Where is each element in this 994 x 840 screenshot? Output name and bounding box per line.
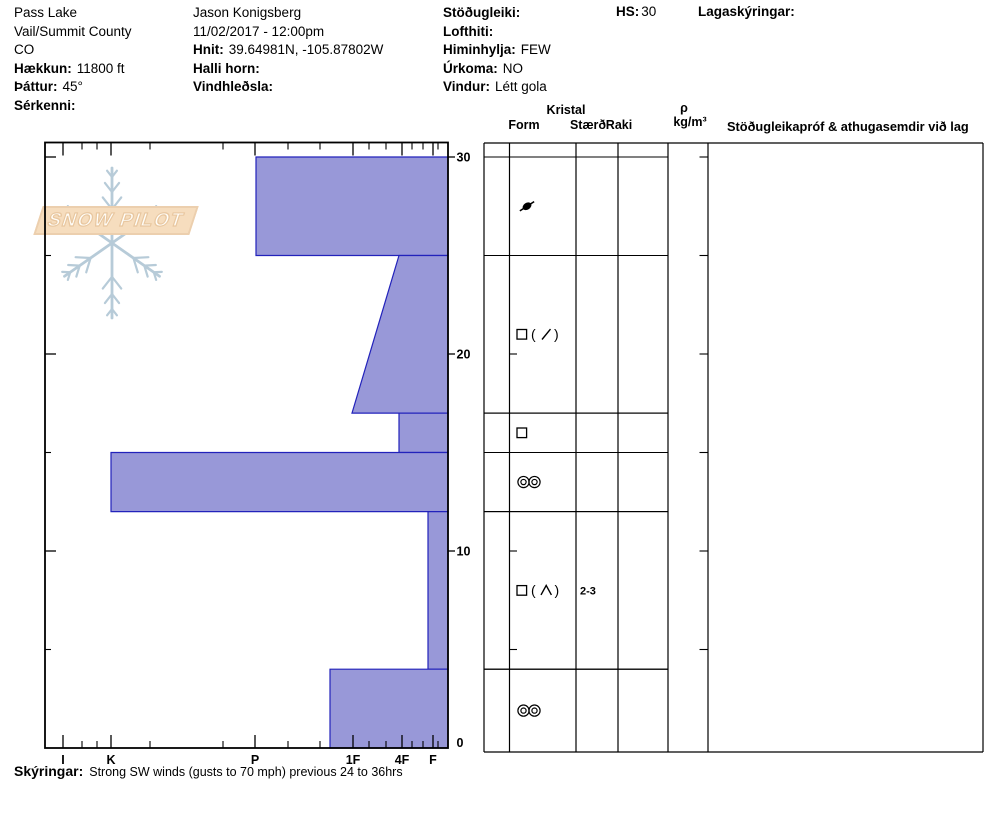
melt-crust-symbol [518,476,529,487]
depth-axis-label: 20 [457,348,471,362]
snow-layer-bar [330,669,448,748]
stability-tests-header: Stöðugleikapróf & athugasemdir við lag [727,119,969,134]
snow-layer-bar [428,512,448,670]
form-column-header: Form [508,118,539,132]
rounding-slash-symbol [542,329,551,339]
paren-glyph: ) [555,582,560,598]
comments-label: Skýringar: [14,763,83,779]
paren-glyph: ) [554,326,559,342]
snow-layer-bar [256,157,448,256]
density-symbol-header: ρ [680,101,688,115]
facet-square-symbol [517,586,527,596]
hardness-axis-label: F [429,753,437,767]
snow-layer-bar [352,256,448,414]
depth-hoar-symbol [541,585,551,595]
depth-axis-label: 0 [457,736,464,750]
decomposing-fragments-symbol [518,199,536,214]
melt-crust-symbol [518,705,529,716]
snow-layer-bar [399,413,448,452]
crystal-group-header: Kristal [547,103,586,117]
density-unit-header: kg/m³ [673,115,706,129]
facet-square-symbol [517,330,527,340]
comments-footnote: Skýringar:Strong SW winds (gusts to 70 m… [14,763,403,779]
facet-square-symbol [517,428,527,438]
moisture-column-header: Raki [606,118,632,132]
melt-crust-symbol [529,476,540,487]
size-column-header: Stærð [570,118,606,132]
comments-text: Strong SW winds (gusts to 70 mph) previo… [89,765,402,779]
melt-crust-symbol [521,708,526,713]
melt-crust-symbol [532,479,537,484]
melt-crust-symbol [529,705,540,716]
paren-glyph: ( [531,326,536,342]
melt-crust-symbol [532,708,537,713]
paren-glyph: ( [531,582,536,598]
snow-layer-bar [111,453,448,512]
depth-axis-label: 10 [457,545,471,559]
depth-axis-label: 30 [457,151,471,165]
snowpilot-profile-page: Pass Lake Vail/Summit County CO Hækkun:1… [0,0,994,840]
grain-size-value: 2-3 [580,585,596,597]
melt-crust-symbol [521,479,526,484]
